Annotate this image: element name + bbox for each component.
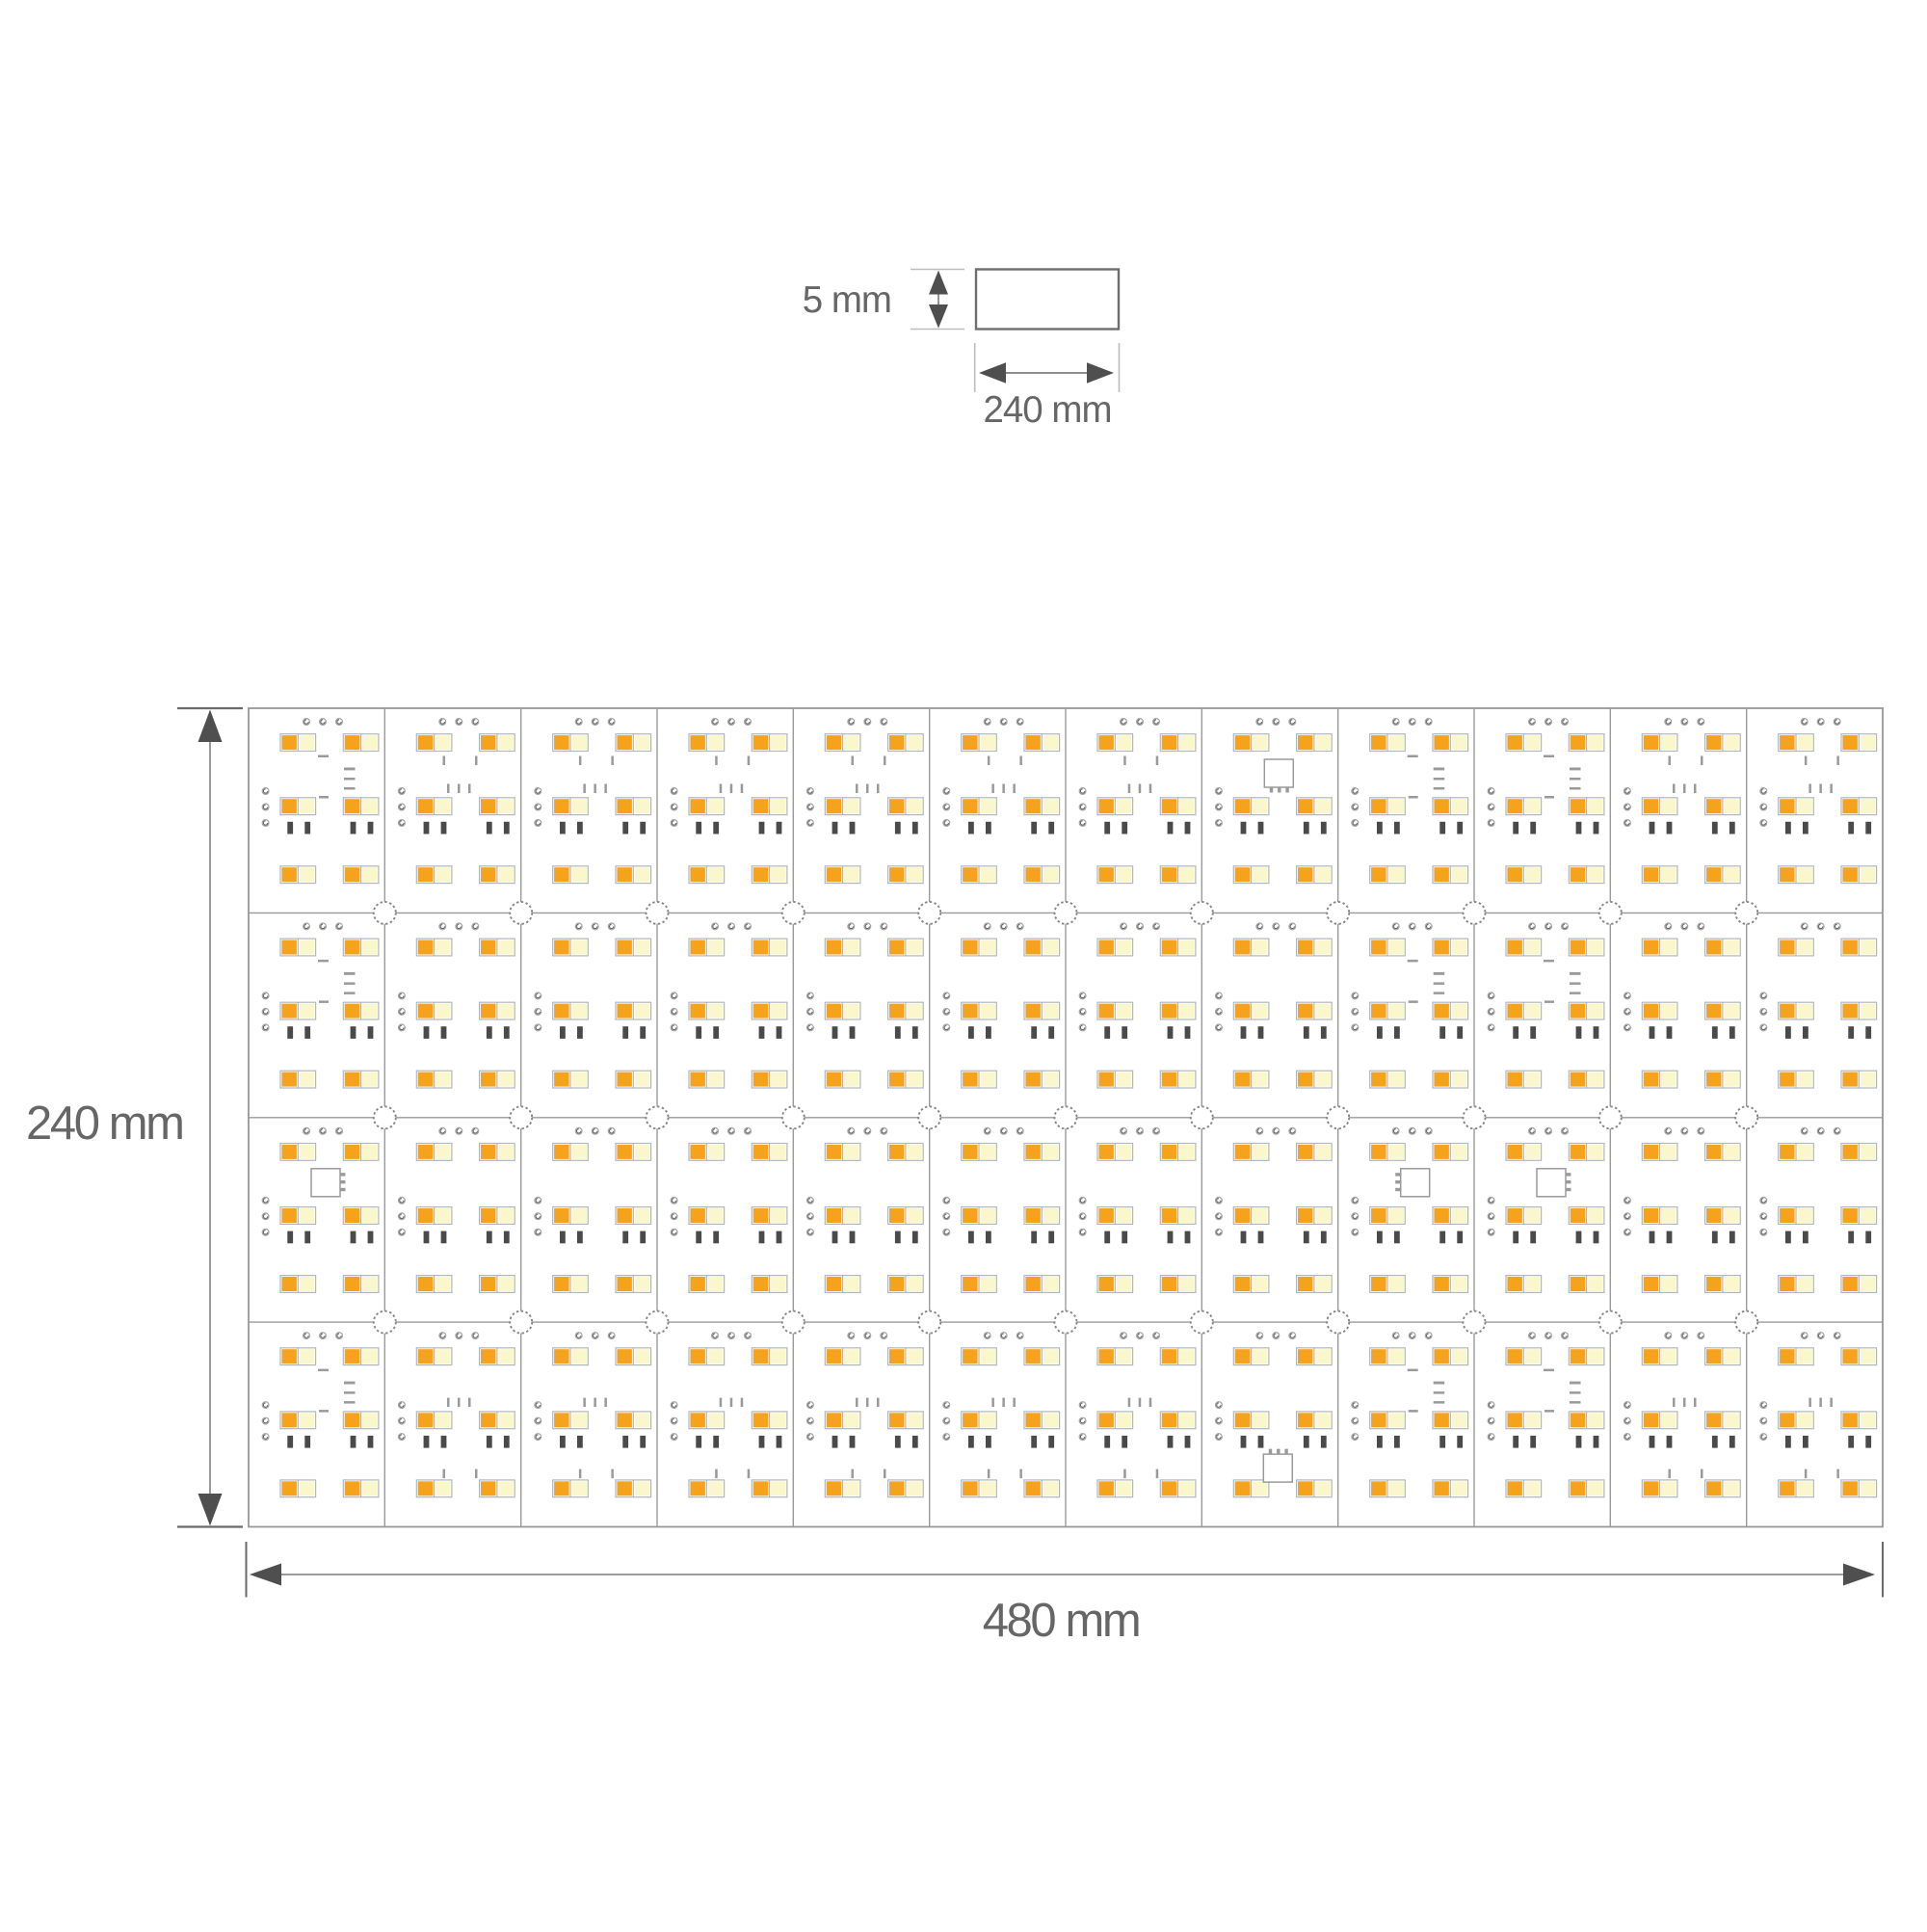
svg-text:480 mm: 480 mm: [983, 1595, 1140, 1647]
svg-text:240 mm: 240 mm: [26, 1098, 183, 1150]
svg-text:5 mm: 5 mm: [803, 279, 891, 321]
svg-text:240 mm: 240 mm: [983, 389, 1111, 431]
